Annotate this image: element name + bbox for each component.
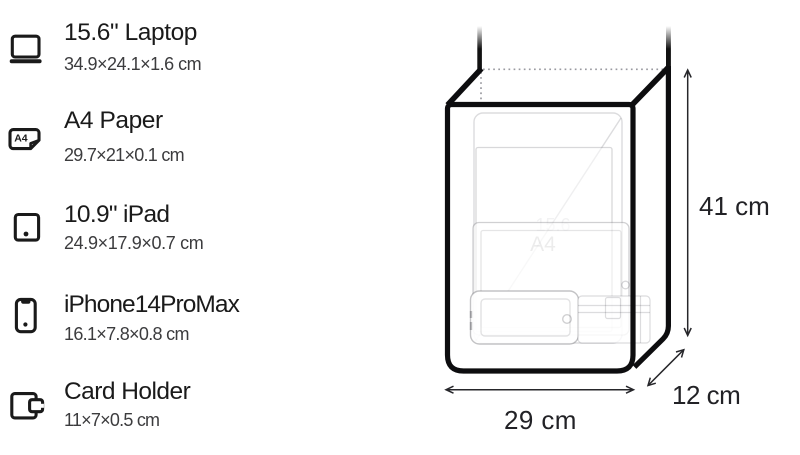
svg-text:12 cm: 12 cm	[672, 380, 740, 410]
svg-text:41 cm: 41 cm	[699, 191, 770, 221]
svg-text:29 cm: 29 cm	[504, 405, 577, 435]
